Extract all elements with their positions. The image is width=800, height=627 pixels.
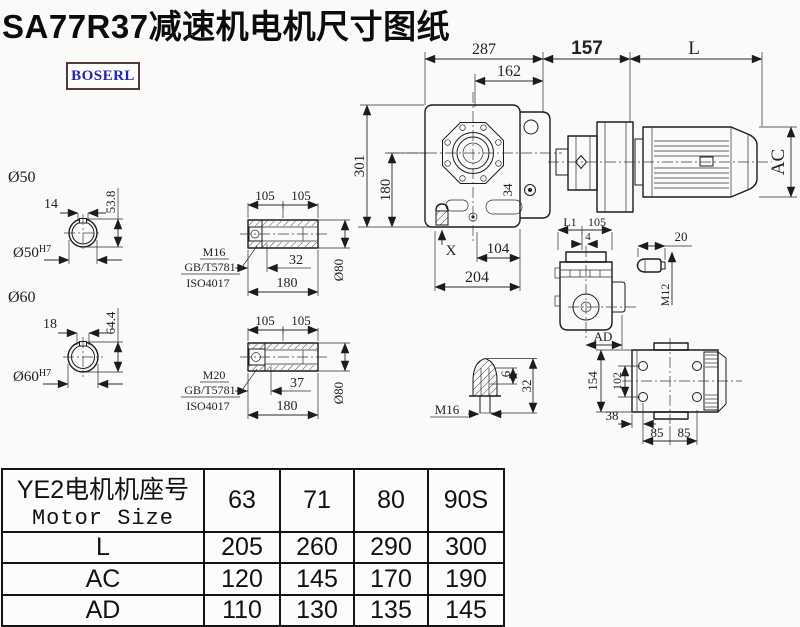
- dim-20: 20: [675, 229, 688, 244]
- breather-plug: [436, 211, 448, 225]
- bolt-label-m20: M20: [203, 368, 226, 382]
- motor-size-header-cell: YE2电机机座号 Motor Size: [2, 469, 204, 532]
- dim-32: 32: [289, 253, 303, 268]
- dim-34: 34: [500, 183, 515, 197]
- table-row-L: L 205 260 290 300: [2, 532, 504, 563]
- bushing-m20-view: 105 105 37 180 Ø80 M20: [181, 313, 350, 419]
- AD-90s: 145: [428, 595, 504, 626]
- AD-63: 110: [204, 595, 280, 626]
- shaft60-label: Ø60: [8, 289, 36, 306]
- dim-53.8: 53.8: [103, 191, 118, 214]
- table-row-AC: AC 120 145 170 190: [2, 563, 504, 595]
- dim-105b: 105: [291, 188, 311, 203]
- AD-80: 135: [354, 595, 428, 626]
- L-71: 260: [280, 532, 354, 563]
- dim-32b: 32: [519, 380, 534, 393]
- end-plug-view: 6 32 M16: [430, 359, 537, 418]
- dim-105a: 105: [255, 188, 275, 203]
- std-gbt5781-a: GB/T5781: [184, 260, 235, 274]
- AD-71: 130: [280, 595, 354, 626]
- key-pin-view: 20 M12: [638, 229, 693, 306]
- size-71: 71: [280, 469, 354, 532]
- plug-thread-m16: M16: [435, 402, 460, 417]
- std-iso4017-b: ISO4017: [186, 399, 229, 413]
- L-80: 290: [354, 532, 428, 563]
- motor-size-table: YE2电机机座号 Motor Size 63 71 80 90S L 205 2…: [1, 468, 505, 627]
- dim-85b: 85: [678, 425, 691, 440]
- thread-m12: M12: [658, 284, 672, 307]
- brand-logo: BOSERL: [66, 62, 140, 90]
- shaft-detail-50: Ø50 14 53.8 Ø50H7: [8, 169, 123, 264]
- bore-60-label: Ø60H7: [13, 368, 51, 385]
- dim-180b: 180: [277, 399, 298, 414]
- dim-180a: 180: [277, 276, 298, 291]
- size-63: 63: [204, 469, 280, 532]
- brand-logo-text: BOSERL: [71, 68, 135, 85]
- AC-90s: 190: [428, 563, 504, 595]
- dim-37: 37: [290, 376, 304, 391]
- row-label-AC: AC: [2, 563, 204, 595]
- dim-157: 157: [571, 38, 603, 59]
- shaft-detail-60: Ø60 18 64.4 Ø60H7: [8, 289, 123, 388]
- dim-180: 180: [378, 179, 394, 202]
- dim-64.4: 64.4: [103, 311, 118, 334]
- main-assembly-view: 287 157 L 162 301 180: [352, 38, 797, 291]
- dim-AC: AC: [768, 149, 789, 175]
- dim-301: 301: [352, 155, 368, 178]
- dim-L1: L1: [563, 215, 576, 229]
- dim-102: 102: [610, 372, 624, 390]
- dim-L: L: [688, 38, 700, 59]
- size-90s: 90S: [428, 469, 504, 532]
- motor-size-header-en: Motor Size: [3, 506, 203, 531]
- AC-80: 170: [354, 563, 428, 595]
- dim-X: X: [446, 243, 457, 259]
- gearbox-side-view: L1 105 4 AD: [555, 215, 636, 349]
- motor-size-header-cn: YE2电机机座号: [3, 470, 203, 506]
- dim-204: 204: [465, 269, 489, 286]
- size-80: 80: [354, 469, 428, 532]
- gearbox-top-view: 154 102 38 85 85: [585, 338, 742, 445]
- dim-287: 287: [472, 41, 496, 58]
- dim-keyway-14: 14: [44, 197, 58, 212]
- std-gbt5781-b: GB/T5781: [184, 383, 235, 397]
- dim-154: 154: [585, 371, 600, 391]
- dim-162: 162: [497, 63, 521, 80]
- AC-71: 145: [280, 563, 354, 595]
- dim-38: 38: [606, 408, 619, 423]
- bushing-m16-view: 105 105 32 180 Ø80 M16: [181, 188, 350, 296]
- dim-104: 104: [487, 241, 510, 257]
- dim-AD: AD: [594, 329, 613, 344]
- table-header-row: YE2电机机座号 Motor Size 63 71 80 90S: [2, 469, 504, 532]
- dim-6: 6: [498, 370, 513, 377]
- motor: [548, 127, 772, 197]
- AC-63: 120: [204, 563, 280, 595]
- row-label-AD: AD: [2, 595, 204, 626]
- dim-105c: 105: [255, 313, 275, 328]
- page-title: SA77R37减速机电机尺寸图纸: [2, 0, 450, 48]
- dim-4: 4: [585, 231, 591, 243]
- std-iso4017-a: ISO4017: [186, 276, 229, 290]
- table-row-AD: AD 110 130 135 145: [2, 595, 504, 626]
- dim-d80a: Ø80: [331, 259, 346, 281]
- dim-85a: 85: [651, 425, 664, 440]
- motor-fins: [654, 141, 729, 188]
- bolt-label-m16: M16: [203, 245, 226, 259]
- coupling-adapter: [556, 122, 633, 212]
- dim-keyway-18: 18: [43, 317, 57, 332]
- drawing-sheet: 287 157 L 162 301 180: [0, 0, 800, 613]
- dim-105e: 105: [588, 215, 606, 229]
- shaft50-label: Ø50: [8, 169, 36, 186]
- L-90s: 300: [428, 532, 504, 563]
- row-label-L: L: [2, 532, 204, 563]
- L-63: 205: [204, 532, 280, 563]
- bore-50-label: Ø50H7: [13, 244, 51, 261]
- dim-105d: 105: [291, 313, 311, 328]
- dim-d80b: Ø80: [331, 382, 346, 404]
